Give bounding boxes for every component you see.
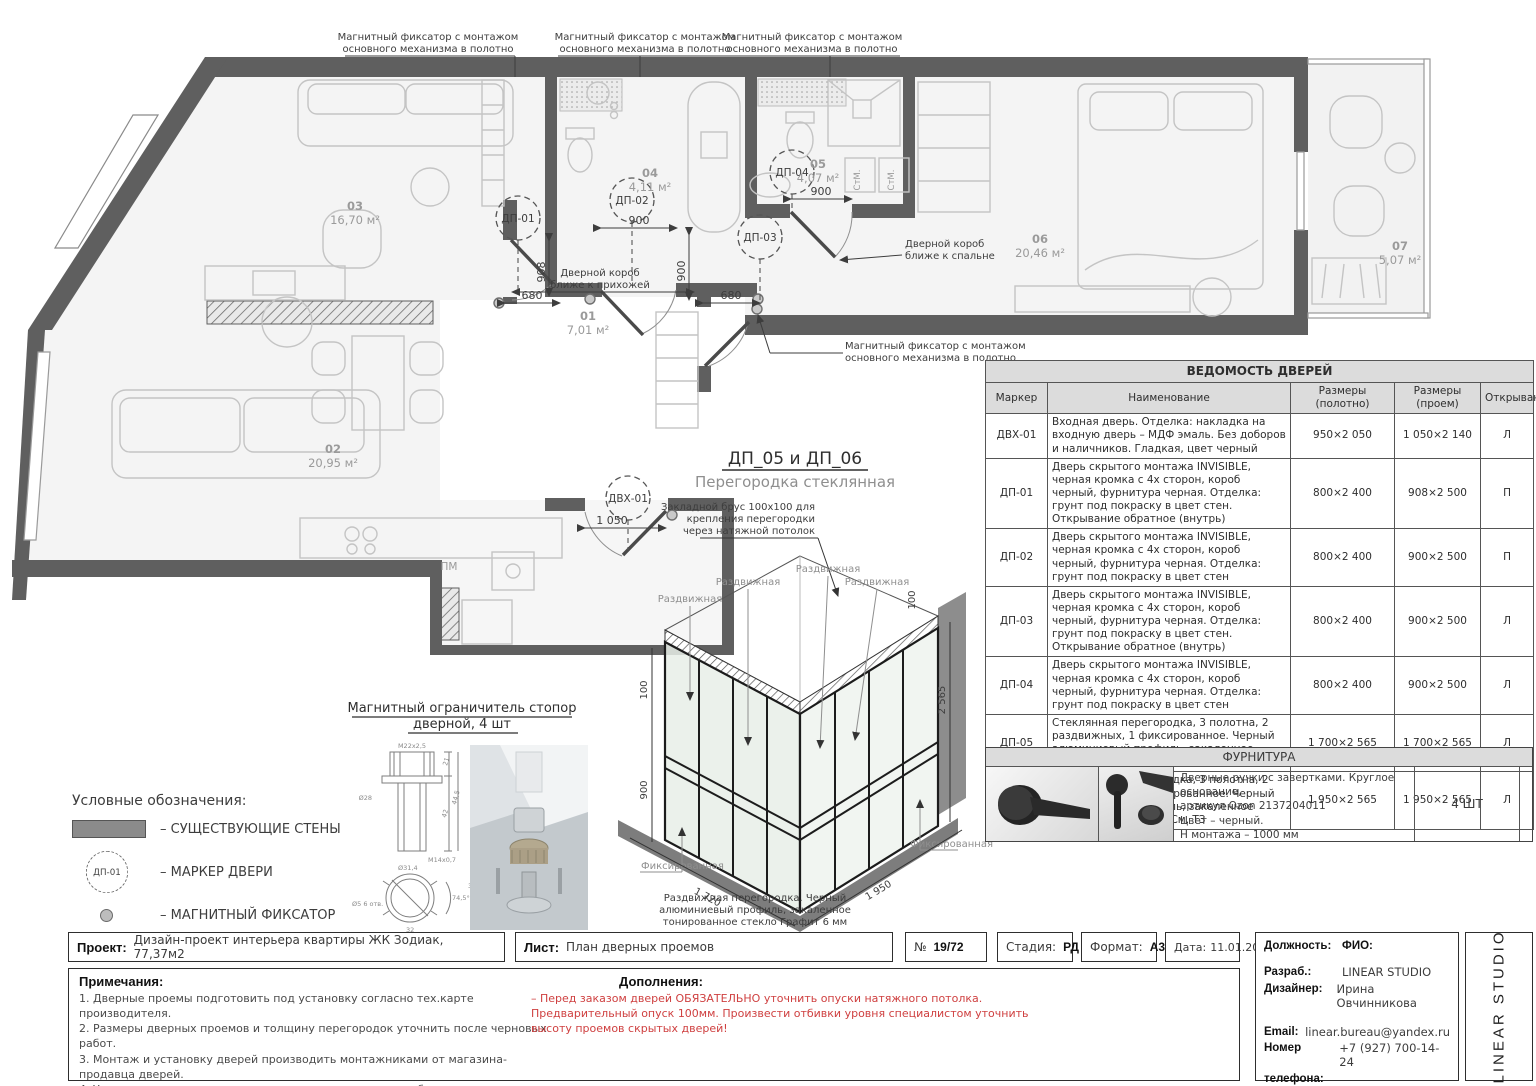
marker-dp01: ДП-01	[501, 213, 534, 225]
additions-title: Дополнения:	[531, 973, 791, 991]
svg-text:900: 900	[639, 780, 650, 799]
door-marker-icon: ДП-01	[86, 851, 128, 893]
format-value: А3	[1150, 940, 1165, 954]
svg-text:Раздвижная: Раздвижная	[716, 577, 780, 588]
room-05-num: 05	[810, 157, 826, 171]
note-item: 3. Монтаж и установку дверей производить…	[79, 1052, 549, 1082]
position-label: Должность:	[1264, 939, 1342, 953]
row-leaf: 800×2 400	[1291, 657, 1395, 715]
addition-line: Предварительный опуск 100мм. Произвести …	[531, 1006, 1221, 1021]
row-name: Входная дверь. Отделка: накладка на вход…	[1048, 414, 1291, 458]
partition-title: ДП_05 и ДП_06	[728, 449, 862, 469]
hardware-title: ФУРНИТУРА	[986, 748, 1532, 767]
developer-value: LINEAR STUDIO	[1342, 965, 1431, 979]
room-03-area: 16,70 м²	[330, 213, 380, 227]
project-box: Проект: Дизайн-проект интерьера квартиры…	[68, 932, 505, 962]
legend-magnet: – МАГНИТНЫЙ ФИКСАТОР	[72, 904, 341, 926]
hardware-block: ФУРНИТУРА Дверные ручки с завертками. Кр…	[985, 747, 1533, 842]
stopper-front-dims: М22х2,5 Ø28 21 42 44,5 М14х0,7	[359, 742, 462, 864]
number-value: 19/72	[933, 940, 963, 954]
svg-text:Ø5 6 отв.: Ø5 6 отв.	[352, 900, 383, 908]
row-name: Дверь скрытого монтажа INVISIBLE, черная…	[1048, 458, 1291, 529]
svg-text:основного механизма в полотно: основного механизма в полотно	[726, 44, 897, 55]
row-opening: 900×2 500	[1395, 657, 1481, 715]
svg-text:М22х2,5: М22х2,5	[398, 742, 426, 750]
svg-text:через натяжной потолок: через натяжной потолок	[683, 526, 815, 537]
legend-door-marker: ДП-01 – МАРКЕР ДВЕРИ	[72, 849, 341, 895]
additions-block: Дополнения: – Перед заказом дверей ОБЯЗА…	[531, 973, 1221, 1036]
row-marker: ДП-04	[986, 657, 1048, 715]
legend-magnet-label: – МАГНИТНЫЙ ФИКСАТОР	[160, 908, 335, 923]
row-marker: ДП-01	[986, 458, 1048, 529]
svg-text:Ø31,4: Ø31,4	[398, 864, 418, 872]
row-leaf: 800×2 400	[1291, 529, 1395, 587]
partition-note-top: Закладной брус 100х100 для	[661, 502, 815, 513]
marker-dp02: ДП-02	[615, 195, 648, 207]
svg-text:Раздвижная: Раздвижная	[796, 564, 860, 575]
hatched-wall	[207, 301, 433, 324]
email-label: Email:	[1264, 1025, 1305, 1039]
stopper-title: Магнитный ограничитель стопор	[347, 701, 576, 716]
hardware-qty: 4 ШТ	[1415, 767, 1520, 841]
room-01-num: 01	[580, 309, 596, 323]
row-marker: ДВХ-01	[986, 414, 1048, 458]
annotation-door-box-bedroom: Дверной короб	[905, 239, 984, 250]
room-04-area: 4,11 м²	[629, 180, 672, 194]
format-box: Формат: А3	[1081, 932, 1157, 962]
row-marker: ДП-03	[986, 586, 1048, 657]
svg-text:2 565: 2 565	[937, 686, 948, 715]
table-row: ДП-02 Дверь скрытого монтажа INVISIBLE, …	[986, 529, 1534, 587]
note-item: 2. Размеры дверных проемов и толщину пер…	[79, 1021, 549, 1051]
svg-text:Раздвижная: Раздвижная	[658, 594, 722, 605]
table-row: ДП-01 Дверь скрытого монтажа INVISIBLE, …	[986, 458, 1534, 529]
phone-value: +7 (927) 700-14-24	[1339, 1041, 1450, 1070]
row-swing: Л	[1481, 657, 1534, 715]
date-box: Дата: 11.01.2026	[1165, 932, 1240, 962]
label-stm-2: СтМ.	[887, 170, 897, 191]
row-name: Дверь скрытого монтажа INVISIBLE, черная…	[1048, 657, 1291, 715]
annotation-fixator-3: Магнитный фиксатор с монтажом	[722, 32, 903, 43]
table-row: ДВХ-01 Входная дверь. Отделка: накладка …	[986, 414, 1534, 458]
room-06-area: 20,46 м²	[1015, 246, 1065, 260]
date-label: Дата:	[1174, 941, 1206, 954]
developer-label: Разраб.:	[1264, 965, 1342, 979]
room-04-num: 04	[642, 166, 658, 180]
room-06-num: 06	[1032, 232, 1048, 246]
col-swing: Открывание	[1481, 383, 1534, 414]
svg-text:дверной, 4 шт: дверной, 4 шт	[413, 717, 511, 732]
hardware-description: Дверные ручки с завертками. Круглое осно…	[1174, 767, 1415, 841]
svg-text:100: 100	[639, 680, 650, 699]
schedule-header-row: Маркер Наименование Размеры (полотно) Ра…	[986, 383, 1534, 414]
note-item: 1. Дверные проемы подготовить под устано…	[79, 991, 549, 1021]
room-01-area: 7,01 м²	[567, 323, 610, 337]
door-handle-photo-1	[986, 767, 1099, 841]
room-07-num: 07	[1392, 239, 1408, 253]
row-swing: Л	[1481, 414, 1534, 458]
svg-text:100: 100	[907, 590, 918, 609]
svg-text:основного механизма в полотно: основного механизма в полотно	[559, 44, 730, 55]
stopper-detail: Магнитный ограничитель стопор дверной, 4…	[340, 696, 592, 934]
row-leaf: 800×2 400	[1291, 586, 1395, 657]
col-opening-size: Размеры (проем)	[1395, 383, 1481, 414]
svg-text:Раздвижная: Раздвижная	[845, 577, 909, 588]
sheet-value: План дверных проемов	[566, 940, 714, 954]
svg-text:Ø28: Ø28	[359, 794, 372, 802]
legend-title: Условные обозначения:	[72, 793, 341, 809]
studio-strip: LINEAR STUDIO	[1465, 932, 1533, 1081]
addition-line: высоту проемов скрытых дверей!	[531, 1021, 1221, 1036]
table-row: ДП-03 Дверь скрытого монтажа INVISIBLE, …	[986, 586, 1534, 657]
info-block: Должность: ФИО: Разраб.: LINEAR STUDIO Д…	[1255, 932, 1459, 1081]
row-swing: Л	[1481, 586, 1534, 657]
door-handle-photo-2	[1099, 767, 1174, 841]
svg-text:крепления перегородки: крепления перегородки	[687, 514, 815, 525]
col-marker: Маркер	[986, 383, 1048, 414]
annotation-fixator-4: Магнитный фиксатор с монтажом	[845, 341, 1026, 352]
sheet-label: Лист:	[524, 940, 559, 955]
stage-value: РД	[1063, 940, 1079, 954]
svg-text:основного механизма в полотно: основного механизма в полотно	[342, 44, 513, 55]
note-item: 4. Уточнить размер проема под скрытые дв…	[79, 1082, 549, 1086]
col-name: Наименование	[1048, 383, 1291, 414]
row-opening: 908×2 500	[1395, 458, 1481, 529]
row-leaf: 800×2 400	[1291, 458, 1395, 529]
svg-text:ближе к прихожей: ближе к прихожей	[550, 280, 650, 291]
row-opening: 900×2 500	[1395, 529, 1481, 587]
svg-text:М14х0,7: М14х0,7	[428, 856, 456, 864]
annotation-fixator-2: Магнитный фиксатор с монтажом	[555, 32, 736, 43]
row-marker: ДП-02	[986, 529, 1048, 587]
row-leaf: 950×2 050	[1291, 414, 1395, 458]
studio-vertical-label: LINEAR STUDIO	[1491, 929, 1508, 1083]
phone-label: Номер	[1264, 1041, 1339, 1070]
row-swing: П	[1481, 458, 1534, 529]
room-05-area: 4,07 м²	[797, 171, 840, 185]
email-value: linear.bureau@yandex.ru	[1305, 1025, 1450, 1039]
glass-partition-detail: ДП_05 и ДП_06 Перегородка стеклянная Зак…	[600, 440, 1000, 936]
sheet-box: Лист: План дверных проемов	[515, 932, 893, 962]
label-pm: ПМ	[441, 561, 458, 573]
dim-900-hall: 900	[675, 261, 688, 282]
legend-walls: – СУЩЕСТВУЮЩИЕ СТЕНЫ	[72, 818, 341, 840]
dim-680-left: 680	[522, 289, 543, 302]
row-swing: П	[1481, 529, 1534, 587]
project-label: Проект:	[77, 940, 127, 955]
dim-680-right: 680	[721, 289, 742, 302]
number-label: №	[914, 940, 926, 954]
room-07-area: 5,07 м²	[1379, 253, 1422, 267]
svg-text:ближе к спальне: ближе к спальне	[905, 251, 995, 262]
legend-walls-label: – СУЩЕСТВУЮЩИЕ СТЕНЫ	[160, 822, 341, 837]
col-leaf-size: Размеры (полотно)	[1291, 383, 1395, 414]
fio-label: ФИО:	[1342, 939, 1373, 953]
stopper-bottom-view	[383, 874, 451, 922]
svg-text:44,5: 44,5	[450, 789, 461, 805]
designer-label: Дизайнер:	[1264, 982, 1337, 1011]
stopper-photo	[470, 745, 588, 930]
svg-text:74,5°: 74,5°	[452, 894, 470, 902]
annotation-door-box-hall: Дверной короб	[560, 268, 639, 279]
table-row: ДП-04 Дверь скрытого монтажа INVISIBLE, …	[986, 657, 1534, 715]
label-stm-1: СтМ.	[853, 170, 863, 191]
svg-text:Фиксированная: Фиксированная	[910, 839, 993, 850]
notes-box: Примечания: 1. Дверные проемы подготовит…	[68, 968, 1240, 1081]
room-02-area: 20,95 м²	[308, 456, 358, 470]
wall-swatch	[72, 820, 146, 838]
room-02-num: 02	[325, 442, 341, 456]
dim-908: 908	[535, 262, 548, 283]
dim-900-dp02: 900	[629, 214, 650, 227]
dim-900-dp04: 900	[811, 185, 832, 198]
magnet-dot-icon	[100, 909, 113, 922]
format-label: Формат:	[1090, 940, 1143, 954]
addition-line: – Перед заказом дверей ОБЯЗАТЕЛЬНО уточн…	[531, 991, 1221, 1006]
room-03-num: 03	[347, 199, 363, 213]
drawing-sheet: ДП-01 ДП-02 ДП-03 ДП-04 ДВХ-01 680 908 9…	[0, 0, 1536, 1086]
row-opening: 1 050×2 140	[1395, 414, 1481, 458]
svg-text:21: 21	[441, 756, 451, 766]
project-value: Дизайн-проект интерьера квартиры ЖК Зоди…	[134, 933, 496, 961]
hardware-empty-cell	[1520, 767, 1532, 841]
partition-subtitle: Перегородка стеклянная	[695, 473, 895, 491]
legend-door-marker-label: – МАРКЕР ДВЕРИ	[160, 865, 273, 880]
marker-dp03: ДП-03	[743, 232, 776, 244]
stage-label: Стадия:	[1006, 940, 1056, 954]
number-box: № 19/72	[905, 932, 987, 962]
legend: Условные обозначения: – СУЩЕСТВУЮЩИЕ СТЕ…	[72, 793, 341, 926]
designer-value: Ирина Овчинникова	[1337, 982, 1450, 1011]
row-name: Дверь скрытого монтажа INVISIBLE, черная…	[1048, 529, 1291, 587]
annotation-fixator-1: Магнитный фиксатор с монтажом	[338, 32, 519, 43]
row-name: Дверь скрытого монтажа INVISIBLE, черная…	[1048, 586, 1291, 657]
partition-note-bottom: Раздвижная перегородка. Черный алюминиев…	[640, 893, 870, 929]
row-opening: 900×2 500	[1395, 586, 1481, 657]
stage-box: Стадия: РД	[997, 932, 1073, 962]
schedule-title: ВЕДОМОСТЬ ДВЕРЕЙ	[986, 361, 1534, 383]
